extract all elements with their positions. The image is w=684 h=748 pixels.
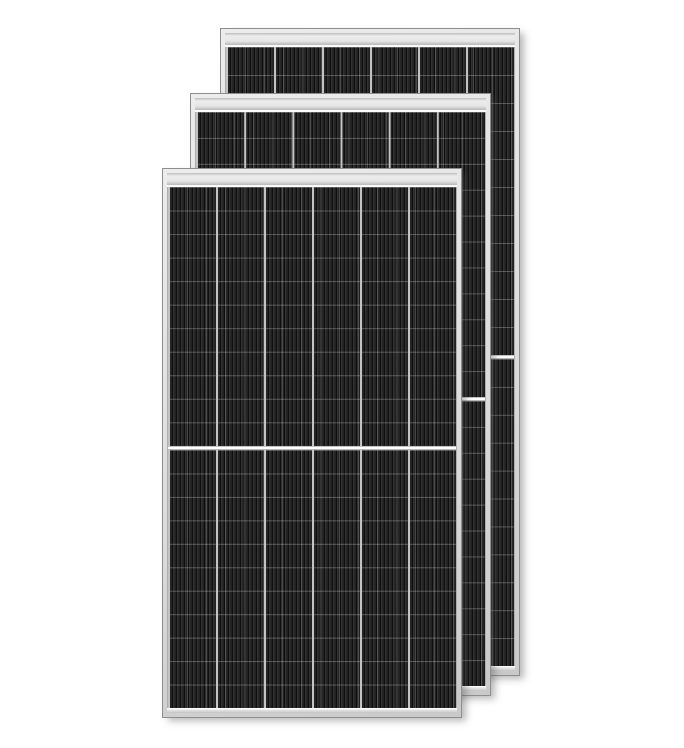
cell-grid-upper-half	[168, 187, 456, 446]
cell-area	[167, 187, 457, 708]
solar-panel-product-image	[0, 0, 684, 748]
solar-panel-front	[162, 168, 462, 718]
panel-top-frame-band	[167, 173, 457, 187]
panel-top-frame-band	[195, 98, 486, 112]
panel-bottom-frame-band	[167, 708, 457, 713]
panel-top-frame-band	[225, 33, 515, 47]
cell-grid-lower-half	[168, 450, 456, 709]
